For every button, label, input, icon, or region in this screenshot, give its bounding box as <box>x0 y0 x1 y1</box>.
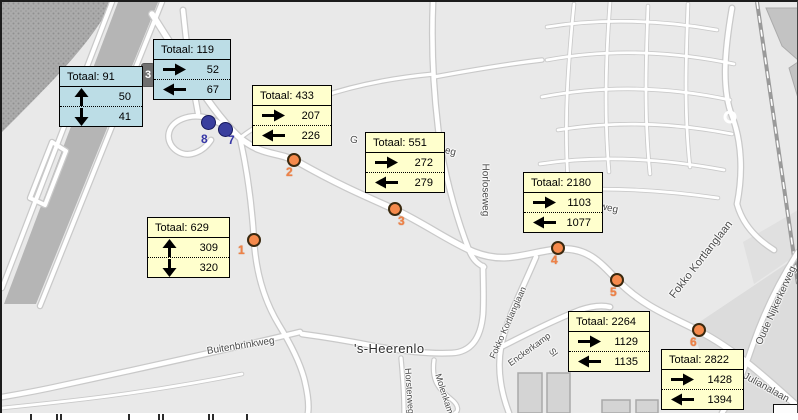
arrow-left-icon <box>670 393 695 406</box>
count-row-right: 1129 <box>569 332 649 352</box>
point-number-label-punt-6: 6 <box>690 335 697 349</box>
count-callout-totaal-91[interactable]: Totaal: 915041 <box>59 66 143 127</box>
count-row-right: 1103 <box>524 193 602 213</box>
count-row-up: 50 <box>60 87 142 107</box>
arrow-right-icon <box>261 109 286 122</box>
text-fragment <box>212 414 214 420</box>
count-value: 1428 <box>708 374 732 386</box>
text-fragment <box>56 414 58 420</box>
measurement-point-punt-8[interactable] <box>201 115 216 130</box>
callout-title: Totaal: 433 <box>253 86 331 106</box>
count-value: 50 <box>119 91 131 103</box>
point-number-label-punt-8: 8 <box>201 132 208 146</box>
count-value: 67 <box>207 84 219 96</box>
count-value: 279 <box>415 177 433 189</box>
arrow-left-icon <box>374 176 399 189</box>
arrow-right-icon <box>374 156 399 169</box>
count-row-left: 1077 <box>524 213 602 232</box>
count-row-down: 320 <box>148 258 229 277</box>
text-fragment <box>162 414 164 420</box>
map-canvas[interactable]: Buitenbrinkweg's-HeerenloHorlosewegFokko… <box>0 0 798 413</box>
callout-title: Totaal: 551 <box>366 133 444 153</box>
count-value: 272 <box>415 157 433 169</box>
street-label-s-heerenlo: 's-Heerenlo <box>354 341 424 356</box>
count-value: 1394 <box>708 394 732 406</box>
map-corner-box <box>773 404 798 413</box>
arrow-left-icon <box>532 216 557 229</box>
count-callout-totaal-551[interactable]: Totaal: 551272279 <box>365 132 445 193</box>
arrow-left-icon <box>577 355 602 368</box>
count-row-up: 309 <box>148 238 229 258</box>
callout-title: Totaal: 2822 <box>662 350 743 370</box>
arrow-left-icon <box>162 83 187 96</box>
callout-title: Totaal: 629 <box>148 218 229 238</box>
traffic-count-map: Buitenbrinkweg's-HeerenloHorlosewegFokko… <box>0 0 798 420</box>
text-fragment <box>30 414 32 420</box>
count-row-left: 1135 <box>569 352 649 371</box>
count-value: 52 <box>207 64 219 76</box>
cropped-caption-fragments <box>0 413 798 420</box>
count-row-left: 67 <box>154 80 230 99</box>
callout-title: Totaal: 91 <box>60 67 142 87</box>
count-value: 207 <box>302 110 320 122</box>
count-value: 1077 <box>567 217 591 229</box>
count-value: 41 <box>119 111 131 123</box>
count-value: 309 <box>200 242 218 254</box>
arrow-right-icon <box>577 335 602 348</box>
arrow-left-icon <box>261 129 286 142</box>
count-value: 1129 <box>614 336 638 348</box>
point-number-label-punt-5: 5 <box>610 285 617 299</box>
road-number-text: 3 <box>145 69 151 81</box>
point-number-label-punt-7: 7 <box>228 133 235 147</box>
count-row-right: 272 <box>366 153 444 173</box>
count-row-left: 226 <box>253 126 331 145</box>
arrow-right-icon <box>162 63 187 76</box>
callout-title: Totaal: 2180 <box>524 173 602 193</box>
count-callout-totaal-2264[interactable]: Totaal: 226411291135 <box>568 311 650 372</box>
arrow-down-icon <box>74 108 89 126</box>
count-value: 1135 <box>614 356 638 368</box>
measurement-point-punt-1[interactable] <box>247 233 261 247</box>
callout-title: Totaal: 2264 <box>569 312 649 332</box>
count-value: 226 <box>302 130 320 142</box>
arrow-down-icon <box>162 259 177 277</box>
street-label-horloseweg: Horloseweg <box>480 164 491 217</box>
text-fragment <box>158 414 160 420</box>
callout-title: Totaal: 119 <box>154 40 230 60</box>
arrow-right-icon <box>670 373 695 386</box>
point-number-label-punt-4: 4 <box>551 253 558 267</box>
count-callout-totaal-2180[interactable]: Totaal: 218011031077 <box>523 172 603 233</box>
point-number-label-punt-2: 2 <box>286 165 293 179</box>
count-row-right: 207 <box>253 106 331 126</box>
point-number-label-punt-1: 1 <box>238 243 245 257</box>
count-callout-totaal-119[interactable]: Totaal: 1195267 <box>153 39 231 100</box>
count-callout-totaal-433[interactable]: Totaal: 433207226 <box>252 85 332 146</box>
text-fragment <box>128 414 130 420</box>
arrow-up-icon <box>74 88 89 106</box>
count-row-right: 52 <box>154 60 230 80</box>
count-row-left: 1394 <box>662 390 743 409</box>
count-callout-totaal-629[interactable]: Totaal: 629309320 <box>147 217 230 278</box>
count-row-left: 279 <box>366 173 444 192</box>
count-callout-totaal-2822[interactable]: Totaal: 282214281394 <box>661 349 744 410</box>
text-fragment <box>246 414 248 420</box>
text-fragment <box>208 414 210 420</box>
text-fragment <box>60 414 62 420</box>
arrow-right-icon <box>532 196 557 209</box>
point-number-label-punt-3: 3 <box>398 214 405 228</box>
count-row-down: 41 <box>60 107 142 126</box>
count-value: 1103 <box>567 197 591 209</box>
arrow-up-icon <box>162 239 177 257</box>
count-value: 320 <box>200 262 218 274</box>
count-row-right: 1428 <box>662 370 743 390</box>
